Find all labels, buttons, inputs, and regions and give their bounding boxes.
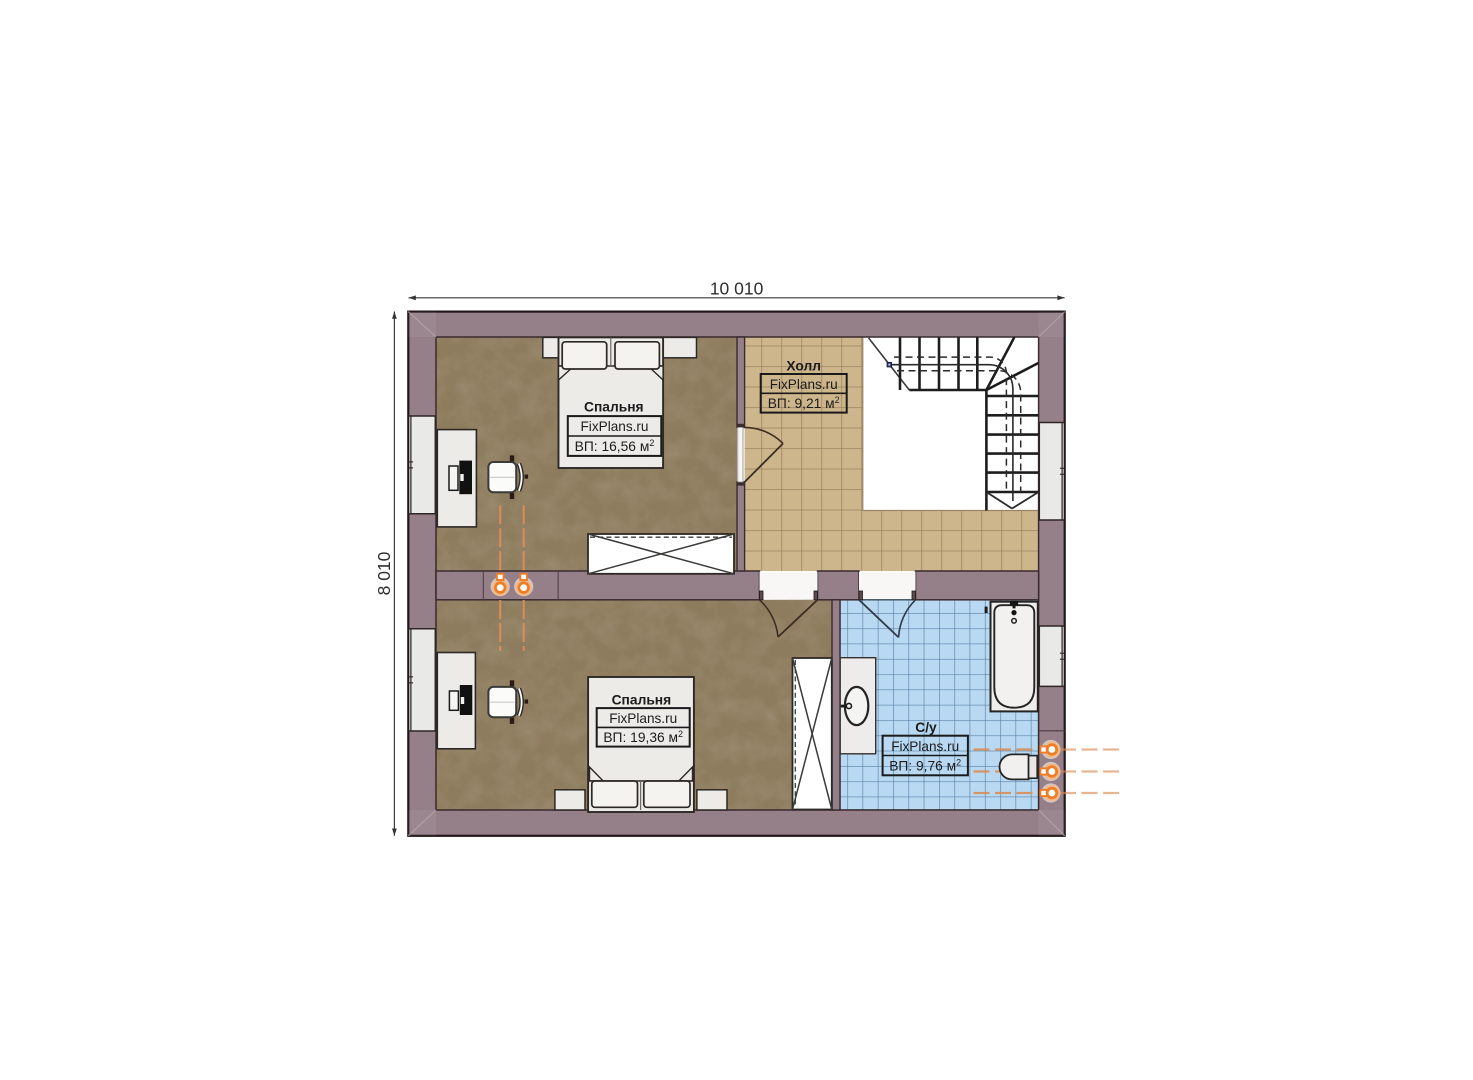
svg-text:Спальня: Спальня	[584, 400, 644, 415]
svg-text:10 010: 10 010	[710, 278, 764, 298]
svg-text:FixPlans.ru: FixPlans.ru	[581, 419, 649, 434]
svg-text:ВП: 19,36 м2: ВП: 19,36 м2	[603, 729, 683, 745]
svg-text:ВП: 16,56 м2: ВП: 16,56 м2	[575, 438, 655, 454]
svg-text:Спальня: Спальня	[612, 693, 672, 708]
svg-text:FixPlans.ru: FixPlans.ru	[609, 711, 677, 726]
svg-text:8 010: 8 010	[374, 551, 394, 595]
svg-text:FixPlans.ru: FixPlans.ru	[770, 377, 838, 392]
svg-text:С/у: С/у	[915, 720, 937, 735]
svg-text:Холл: Холл	[786, 358, 821, 373]
svg-text:ВП: 9,21 м2: ВП: 9,21 м2	[768, 395, 840, 411]
svg-text:FixPlans.ru: FixPlans.ru	[891, 739, 959, 754]
svg-text:ВП: 9,76 м2: ВП: 9,76 м2	[889, 758, 961, 774]
